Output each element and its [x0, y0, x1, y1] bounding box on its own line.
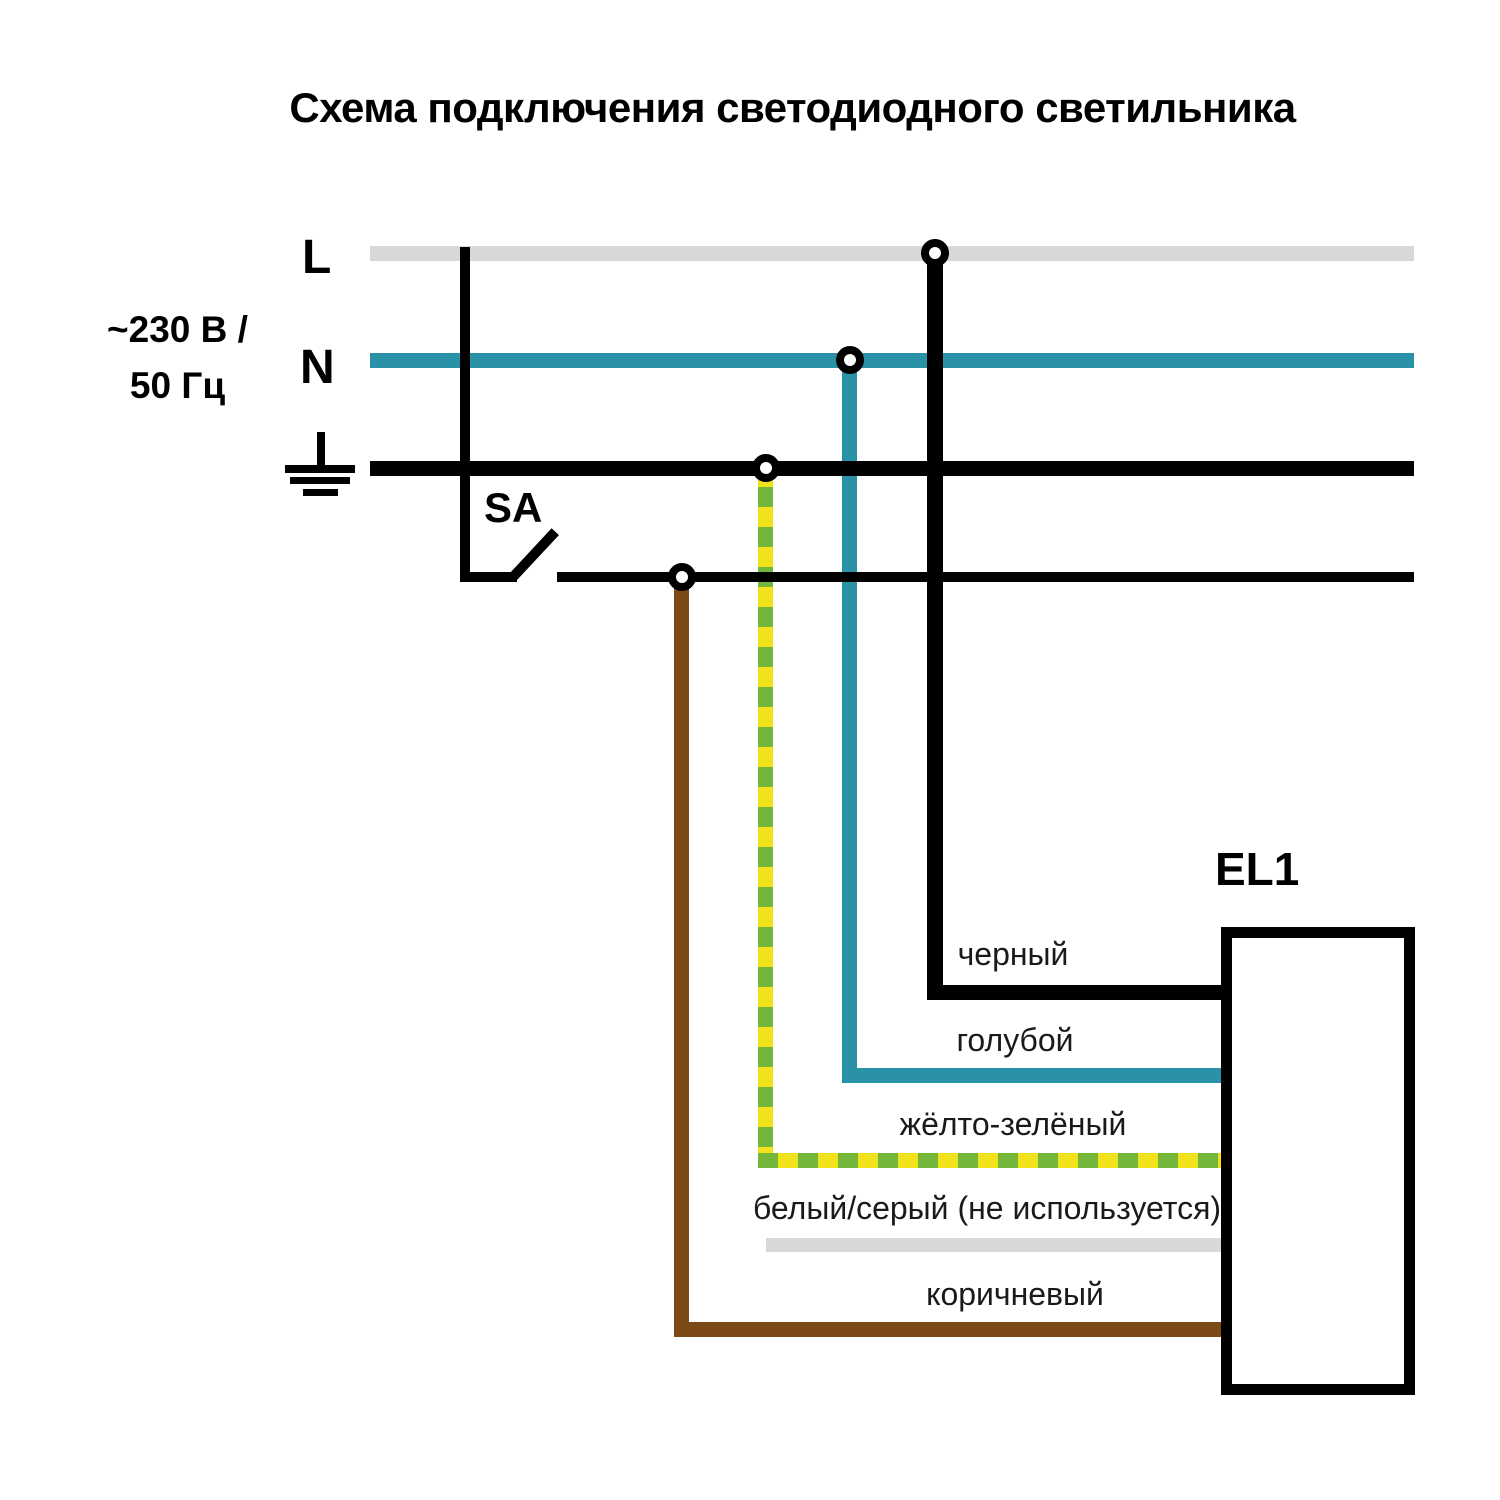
wire-label-blue: голубой — [956, 1022, 1073, 1059]
wire-label-yellow-green: жёлто-зелёный — [900, 1106, 1127, 1143]
earth-icon-bar1 — [285, 465, 355, 473]
node-N-tap — [836, 346, 864, 374]
black-wire-vertical — [927, 253, 943, 1000]
wire-label-white-gray: белый/серый (не используется) — [753, 1190, 1221, 1227]
neutral-N-bus — [370, 353, 1414, 368]
luminaire-label: EL1 — [1215, 842, 1299, 896]
voltage-label-line2: 50 Гц — [55, 358, 300, 414]
switch-label: SA — [484, 484, 542, 532]
voltage-label: ~230 В / 50 Гц — [55, 302, 300, 414]
earth-icon-bar3 — [303, 489, 338, 496]
wire-label-brown: коричневый — [926, 1276, 1104, 1313]
black-wire-horizontal — [927, 985, 1232, 1000]
earth-PE-bus — [370, 461, 1414, 476]
voltage-label-line1: ~230 В / — [55, 302, 300, 358]
earth-icon — [317, 432, 325, 469]
brown-wire-horizontal — [674, 1322, 1232, 1337]
wire-label-black: черный — [958, 936, 1069, 973]
switch-blade — [509, 528, 559, 580]
node-switched-tap — [668, 563, 696, 591]
luminaire-box — [1221, 927, 1415, 1395]
switch-feed-vertical — [460, 247, 470, 582]
neutral-label: N — [300, 340, 335, 395]
line-L-bus — [370, 246, 1414, 261]
blue-wire-horizontal — [842, 1068, 1232, 1083]
diagram-title: Схема подключения светодиодного светильн… — [0, 84, 1500, 132]
node-PE-tap — [752, 454, 780, 482]
earth-icon-bar2 — [290, 477, 350, 484]
node-L-tap — [921, 239, 949, 267]
line-label: L — [302, 230, 331, 285]
wiring-diagram: Схема подключения светодиодного светильн… — [0, 0, 1500, 1500]
yellow-green-wire-horizontal — [758, 1153, 1232, 1168]
brown-wire-vertical — [674, 577, 689, 1337]
white-gray-wire — [766, 1238, 1232, 1252]
